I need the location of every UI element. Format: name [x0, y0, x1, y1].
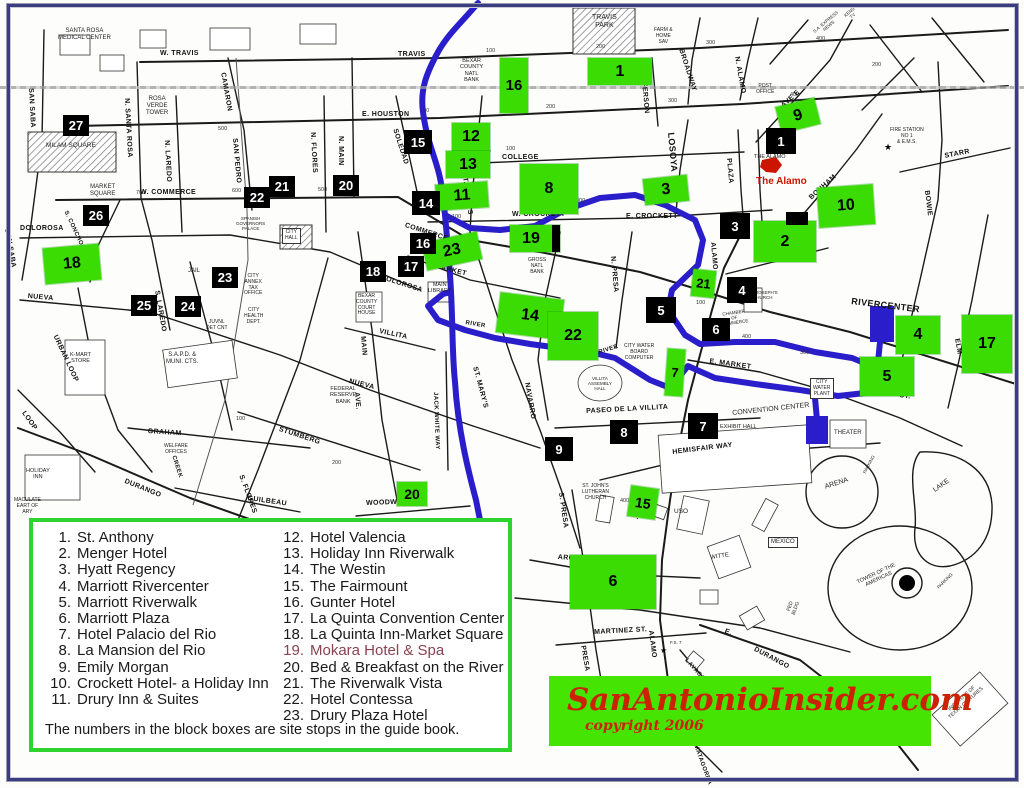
block-number-label: 300 — [800, 350, 809, 356]
star-icon: ★ — [660, 646, 667, 655]
street-label: RIVER — [465, 320, 486, 329]
legend-item: 14.The Westin — [278, 562, 504, 578]
hotel-marker: 2 — [754, 221, 816, 262]
street-label: ST. MARY'S — [471, 366, 489, 409]
hotel-marker: 4 — [896, 316, 940, 354]
hotel-marker: 19 — [510, 225, 560, 252]
legend-item-name: Menger Hotel — [71, 546, 167, 562]
hotel-marker: 12 — [452, 123, 490, 151]
legend-item-number: 1. — [45, 530, 71, 546]
star-icon: ★ — [884, 142, 892, 153]
landmark-label: USO — [674, 508, 688, 515]
landmark-label: VILLITA ASSEMBLY HALL — [588, 376, 612, 392]
landmark-label: CITY HEALTH DEPT. — [244, 308, 263, 325]
landmark-label: FARM & HOME SAV — [654, 28, 673, 45]
legend-item: 1.St. Anthony — [45, 530, 269, 546]
legend-item: 13.Holiday Inn Riverwalk — [278, 546, 504, 562]
site-stop-marker: 14 — [412, 191, 440, 215]
landmark-label: CITY WATER BOARD COMPUTER — [624, 344, 654, 361]
legend-item-number: 16. — [278, 595, 304, 611]
hotel-marker: 7 — [664, 348, 685, 396]
site-stop-marker: 1 — [766, 128, 796, 154]
legend-item: 3.Hyatt Regency — [45, 562, 269, 578]
site-stop-marker: 9 — [545, 437, 573, 461]
landmark-label: K-MART STORE — [70, 352, 91, 365]
street-label: PRESA — [579, 645, 590, 672]
street-label: PLAZA — [725, 158, 734, 184]
site-stop-marker: 24 — [175, 296, 201, 317]
legend-item-number: 4. — [45, 579, 71, 595]
street-label: LOSOYA — [666, 132, 679, 172]
landmark-label: FEDERAL RESERVE BANK — [330, 386, 356, 405]
hotel-marker: 15 — [627, 485, 659, 520]
legend-item-number: 11. — [45, 692, 71, 708]
street-label: W. TRAVIS — [160, 50, 199, 57]
hotel-marker: 21 — [691, 269, 717, 298]
block-number-label: 100 — [506, 146, 515, 152]
street-label: CAMARON — [219, 72, 233, 112]
block-number-label: 200 — [872, 62, 881, 68]
landmark-label: JAIL — [188, 268, 200, 275]
street-label: MAIN — [359, 336, 368, 356]
landmark-label: CITY WATER PLANT — [810, 378, 834, 399]
legend-item-name: Mokara Hotel & Spa — [304, 643, 444, 659]
legend-item-number: 2. — [45, 546, 71, 562]
landmark-label: THE ALAMO — [754, 154, 785, 160]
legend-item: 4.Marriott Rivercenter — [45, 579, 269, 595]
landmark-label: ROSA VERDE TOWER — [146, 96, 168, 117]
legend-item-number: 8. — [45, 643, 71, 659]
landmark-label: S.A.P.D. & MUNI. CTS. — [166, 352, 198, 366]
block-number-label: 100 — [486, 48, 495, 54]
street-label: DURANGO — [123, 478, 162, 499]
legend-item-number: 5. — [45, 595, 71, 611]
street-label: SAN PEDRO — [231, 138, 242, 184]
landmark-label: THEATER — [834, 430, 862, 437]
hotel-marker: 20 — [397, 482, 427, 506]
legend-item-number: 15. — [278, 579, 304, 595]
legend-item-name: Marriott Plaza — [71, 611, 170, 627]
hotel-marker: 18 — [43, 244, 102, 285]
landmark-label: MEXICO — [768, 537, 798, 548]
legend-item-name: Hotel Contessa — [304, 692, 413, 708]
street-label: N. MAIN — [337, 136, 344, 166]
landmark-label: BEXAR COUNTY COURT HOUSE — [356, 294, 377, 317]
block-number-label: 400 — [742, 334, 751, 340]
map-page: W. TRAVISTRAVISE. HOUSTONCOLLEGEW. CROCK… — [0, 0, 1024, 788]
legend-note: The numbers in the block boxes are site … — [45, 722, 459, 738]
legend-item: 7.Hotel Palacio del Rio — [45, 627, 269, 643]
street-label: VILLITA — [379, 328, 409, 341]
street-label: HEMISFAIR WAY — [672, 442, 733, 456]
landmark-label: MACULATE EART OF ARY — [14, 498, 41, 515]
street-label: S. FLORES — [237, 474, 257, 515]
site-stop-marker: 3 — [720, 213, 750, 239]
legend-item: 18.La Quinta Inn-Market Square — [278, 627, 504, 643]
site-stop-marker: 23 — [212, 267, 238, 288]
hotel-marker: 13 — [446, 151, 490, 178]
street-label: NAVARRO — [523, 382, 536, 420]
landmark-label: CONVENTION CENTER — [732, 402, 810, 418]
landmark-label: PARKING — [936, 572, 954, 590]
legend-item-name: The Westin — [304, 562, 386, 578]
street-label: RIVER — [598, 344, 619, 356]
legend-item-name: Crockett Hotel- a Holiday Inn — [71, 676, 269, 692]
legend-item: 21.The Riverwalk Vista — [278, 676, 504, 692]
hotel-marker: 17 — [962, 315, 1012, 373]
hotel-marker: 16 — [500, 58, 528, 113]
block-number-label: 200 — [332, 460, 341, 466]
landmark-label: PARKING — [862, 454, 876, 474]
landmark-label: HOLIDAY INN — [26, 468, 50, 481]
street-label: LOOP — [20, 410, 38, 432]
street-label: MARTINEZ ST. — [594, 626, 647, 636]
landmark-label: FED BLDG — [786, 599, 801, 616]
site-stop-marker: 5 — [646, 297, 676, 323]
legend-item-name: Hotel Palacio del Rio — [71, 627, 216, 643]
site-stop-marker: 15 — [404, 130, 432, 154]
site-stop-marker: 21 — [269, 176, 295, 197]
legend-item-name: The Fairmount — [304, 579, 408, 595]
street-label: E. MARKET — [709, 358, 752, 371]
block-number-label: 200 — [596, 44, 605, 50]
legend-column-2: 12.Hotel Valencia13.Holiday Inn Riverwal… — [278, 530, 504, 724]
legend-item-number: 3. — [45, 562, 71, 578]
street-label: MATAGORDA — [692, 744, 712, 786]
landmark-label: SANTA ROSA MEDICAL CENTER — [58, 28, 111, 42]
landmark-label: WITTE — [710, 552, 729, 561]
street-label: ALAMO — [709, 242, 718, 270]
street-label: N. LAREDO — [163, 140, 172, 182]
landmark-label: CITY HALL — [282, 228, 301, 244]
street-label: E. HOUSTON — [362, 111, 409, 118]
street-label: STARR — [944, 148, 970, 160]
legend-item: 17.La Quinta Convention Center — [278, 611, 504, 627]
legend-item: 20.Bed & Breakfast on the River — [278, 660, 504, 676]
legend-item-number: 19. — [278, 643, 304, 659]
legend-item-number: 18. — [278, 627, 304, 643]
street-label: N. FLORES — [309, 132, 318, 173]
legend-item: 2.Menger Hotel — [45, 546, 269, 562]
street-label: JACK WHITE WAY — [432, 392, 440, 450]
legend-item-name: Marriott Riverwalk — [71, 595, 197, 611]
legend-item-name: St. Anthony — [71, 530, 154, 546]
legend-item-name: Emily Morgan — [71, 660, 169, 676]
legend-item: 22.Hotel Contessa — [278, 692, 504, 708]
site-stop-marker: 27 — [63, 115, 89, 136]
landmark-label: CITY ANNEX TAX OFFICE — [244, 274, 262, 297]
site-stop-marker: 16 — [410, 233, 436, 254]
legend-item-name: Hyatt Regency — [71, 562, 175, 578]
hotel-marker: 3 — [643, 175, 689, 205]
legend-item-number: 21. — [278, 676, 304, 692]
landmark-label: The Alamo — [756, 176, 807, 188]
street-label: W. COMMERCE — [140, 189, 196, 196]
street-label: SAN SABA — [27, 88, 36, 128]
legend-item: 16.Gunter Hotel — [278, 595, 504, 611]
legend-item-name: The Riverwalk Vista — [304, 676, 442, 692]
watermark-banner: SanAntonioInsider.com copyright 2006 — [549, 676, 931, 746]
site-stop-marker: 20 — [333, 175, 359, 196]
block-number-label: 300 — [668, 98, 677, 104]
site-stop-marker: 18 — [360, 261, 386, 282]
landmark-label: ARENA — [824, 477, 849, 492]
street-label: STUMBERG — [278, 426, 321, 446]
landmark-label: LAKE — [932, 478, 951, 495]
site-stop-marker: 25 — [131, 295, 157, 316]
landmark-label: ST. JOHN'S LUTHERAN CHURCH — [582, 484, 609, 501]
site-stop-marker — [786, 212, 808, 225]
block-number-label: 100 — [236, 416, 245, 422]
street-label: NUEVA — [27, 293, 53, 302]
hotel-marker: 6 — [570, 555, 656, 609]
legend-item-name: La Mansion del Rio — [71, 643, 205, 659]
landmark-label: EXHIBIT HALL — [720, 424, 757, 430]
hotel-marker: 1 — [588, 58, 652, 85]
street-label: AVE. — [353, 392, 361, 410]
street-label: N. ALAMO — [733, 56, 746, 94]
hotel-marker: 22 — [548, 312, 598, 360]
hotel-marker: 5 — [860, 357, 914, 396]
watermark-site-name: SanAntonioInsider.com — [567, 682, 973, 718]
site-stop-marker: 4 — [727, 277, 757, 303]
landmark-label: JUVNL DET CNT — [206, 320, 228, 332]
block-number-label: 200 — [546, 104, 555, 110]
landmark-label: SPANISH GOVERNORS PALACE — [236, 216, 265, 232]
legend-item-number: 7. — [45, 627, 71, 643]
street-label: RIVERCENTER — [851, 296, 921, 314]
legend-item: 5.Marriott Riverwalk — [45, 595, 269, 611]
site-stop-marker: 7 — [688, 413, 718, 439]
street-label: DURANGO — [753, 646, 791, 670]
legend-item: 10.Crockett Hotel- a Holiday Inn — [45, 676, 269, 692]
legend-item-number: 22. — [278, 692, 304, 708]
street-label: E. CROCKETT — [626, 213, 678, 220]
site-stop-marker: 22 — [244, 187, 270, 208]
block-number-label: 100 — [696, 300, 705, 306]
street-label: S. PRESA — [557, 492, 569, 529]
landmark-label: F.S. 7 — [670, 640, 682, 645]
legend-item-name: Bed & Breakfast on the River — [304, 660, 503, 676]
landmark-label: MILAM SQUARE — [46, 142, 96, 149]
legend-item-number: 12. — [278, 530, 304, 546]
landmark-label: POST OFFICE — [756, 84, 774, 96]
street-label: BOWIE — [923, 190, 933, 216]
legend-item-name: La Quinta Inn-Market Square — [304, 627, 503, 643]
street-label: E. — [724, 628, 733, 637]
landmark-label: KENS TV — [843, 6, 859, 22]
landmark-label: BEXAR COUNTY NATL BANK — [460, 58, 483, 83]
hotel-marker: 11 — [435, 181, 489, 211]
legend-item-name: Marriott Rivercenter — [71, 579, 209, 595]
hotel-marker: 10 — [817, 184, 876, 228]
hotel-marker: 8 — [520, 164, 578, 214]
block-number-label: 100 — [420, 108, 429, 114]
street-label: S. CONCHO — [63, 210, 84, 247]
legend-item-name: Gunter Hotel — [304, 595, 395, 611]
street-label: CREEK — [170, 455, 183, 479]
legend-item: 6.Marriott Plaza — [45, 611, 269, 627]
street-label: SAN SABA — [3, 228, 17, 268]
street-label: N. SANTA ROSA — [123, 98, 133, 158]
legend-item: 9.Emily Morgan — [45, 660, 269, 676]
legend-item-name: Holiday Inn Riverwalk — [304, 546, 454, 562]
legend-item-name: La Quinta Convention Center — [304, 611, 504, 627]
street-label: DOLOROSA — [380, 274, 424, 294]
legend-item-number: 17. — [278, 611, 304, 627]
street-label: DOLOROSA — [20, 225, 64, 232]
street-label: PASEO DE LA VILLITA — [586, 404, 668, 415]
legend-item: 12.Hotel Valencia — [278, 530, 504, 546]
site-stop-marker: 17 — [398, 256, 424, 277]
street-label: BROADWAY — [677, 48, 697, 92]
legend-item: 11.Drury Inn & Suites — [45, 692, 269, 708]
legend-item-name: Hotel Valencia — [304, 530, 406, 546]
legend-item-number: 9. — [45, 660, 71, 676]
legend-item-number: 20. — [278, 660, 304, 676]
landmark-label: MAIN LIBRARY — [428, 282, 451, 295]
street-label: ALAMO — [647, 630, 657, 658]
legend-item-number: 6. — [45, 611, 71, 627]
street-label: TRAVIS — [398, 51, 426, 58]
legend-item: 15.The Fairmount — [278, 579, 504, 595]
landmark-label: S.A. EXPRESS NEWS — [812, 10, 842, 38]
legend-item-number: 10. — [45, 676, 71, 692]
legend-item: 19.Mokara Hotel & Spa — [278, 643, 504, 659]
site-stop-marker: 6 — [702, 318, 730, 341]
street-label: GRAHAM — [148, 428, 182, 437]
street-label: COLLEGE — [502, 154, 539, 161]
block-number-label: 500 — [218, 126, 227, 132]
site-stop-marker: 26 — [83, 205, 109, 226]
landmark-label: FIRE STATION NO 1 & E.M.S. — [890, 128, 924, 145]
landmark-label: TRAVIS PARK — [592, 14, 617, 30]
legend-column-1: 1.St. Anthony2.Menger Hotel3.Hyatt Regen… — [45, 530, 269, 708]
watermark-copyright: copyright 2006 — [585, 718, 704, 734]
landmark-label: WELFARE OFFICES — [164, 444, 188, 456]
landmark-label: MARKET SQUARE — [90, 184, 115, 198]
site-stop-marker: 8 — [610, 420, 638, 444]
block-number-label: 500 — [318, 187, 327, 193]
legend-item: 8.La Mansion del Rio — [45, 643, 269, 659]
legend-box: 1.St. Anthony2.Menger Hotel3.Hyatt Regen… — [29, 518, 512, 752]
block-number-label: 600 — [232, 188, 241, 194]
landmark-label: TOWER OF THE AMERICAS — [856, 562, 899, 591]
landmark-label: ARMISTEAD — [408, 4, 443, 11]
block-number-label: 300 — [706, 40, 715, 46]
street-label: N. PRESA — [609, 256, 619, 293]
landmark-label: GROSS NATL BANK — [528, 258, 546, 275]
legend-item-number: 14. — [278, 562, 304, 578]
block-number-label: 100 — [452, 214, 461, 220]
legend-item-name: Drury Inn & Suites — [71, 692, 199, 708]
block-number-label: 400 — [816, 36, 825, 42]
legend-item-number: 13. — [278, 546, 304, 562]
